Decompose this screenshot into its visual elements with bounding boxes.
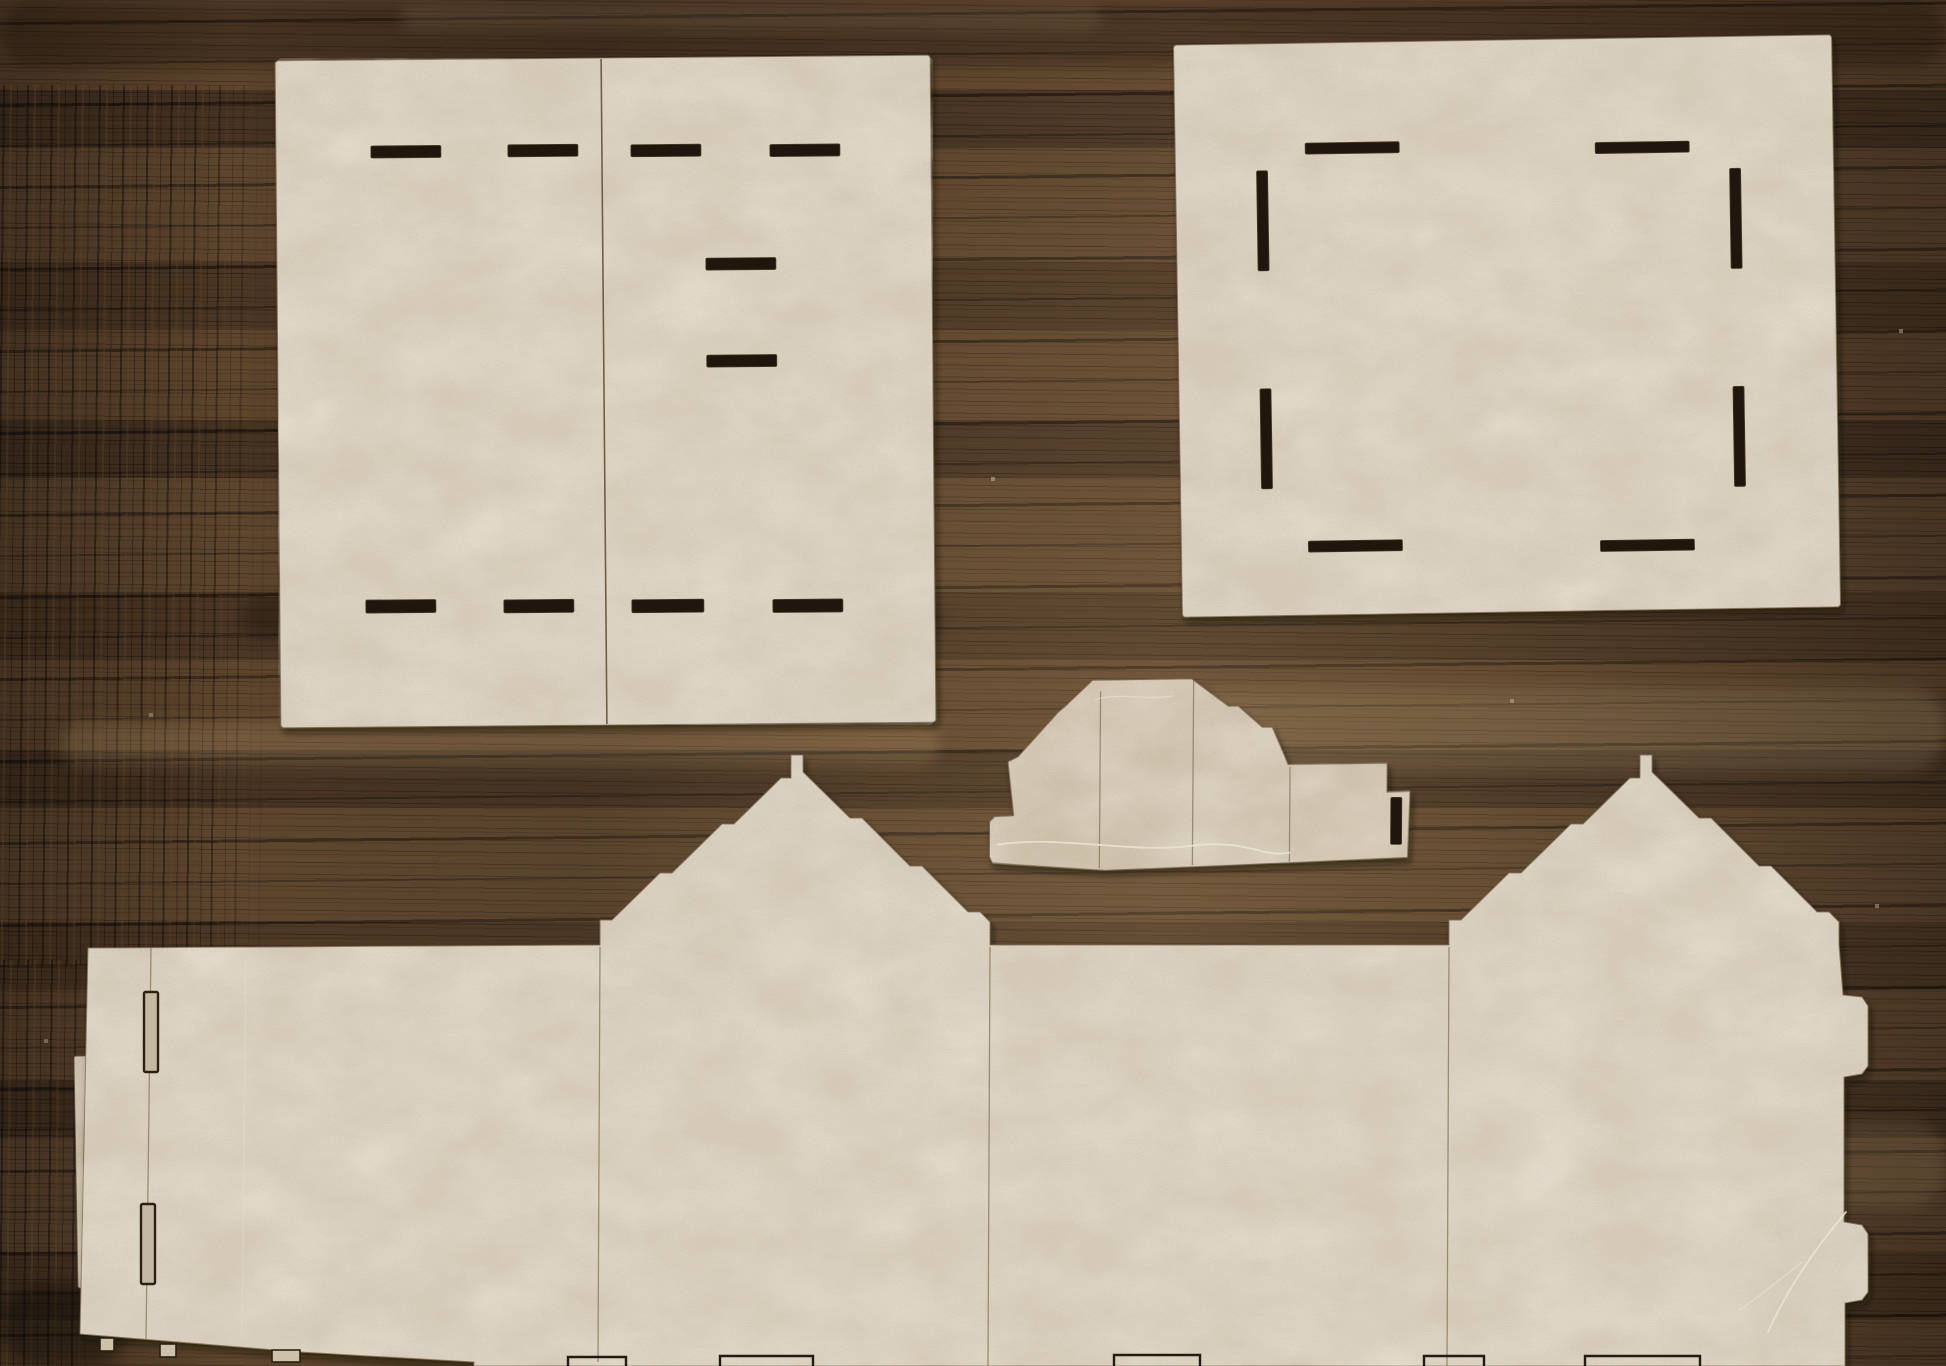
dormer-slot-group bbox=[1391, 797, 1402, 844]
paper-fiber-texture bbox=[0, 0, 1946, 1366]
slot-cut bbox=[504, 599, 574, 613]
fold-score-line bbox=[1289, 767, 1290, 862]
slot-cut bbox=[1733, 386, 1746, 486]
slot-cut bbox=[366, 599, 436, 613]
slot-cut bbox=[1730, 168, 1743, 268]
slot-cut bbox=[144, 992, 158, 1072]
bottom-tab-stub bbox=[160, 1344, 176, 1357]
slot-cut bbox=[631, 144, 701, 157]
slot-cut bbox=[1600, 539, 1694, 551]
slot-cut bbox=[770, 144, 840, 157]
bottom-tab-stub bbox=[100, 1338, 114, 1351]
slot-cut bbox=[632, 599, 704, 613]
slot-cut bbox=[1595, 141, 1689, 153]
slot-cut bbox=[1391, 797, 1402, 844]
slot-cut bbox=[1257, 171, 1270, 271]
slot-cut bbox=[1260, 389, 1273, 489]
photo-scene bbox=[0, 0, 1946, 1366]
slot-cut bbox=[1308, 540, 1402, 552]
slot-cut bbox=[707, 355, 777, 368]
slot-cut bbox=[371, 145, 441, 158]
cardboard-texture-overlay bbox=[0, 0, 1946, 1366]
slot-cut bbox=[773, 599, 843, 613]
slot-cut bbox=[508, 144, 578, 157]
slot-cut bbox=[141, 1204, 155, 1284]
bottom-tab-stub bbox=[272, 1350, 300, 1362]
slot-cut bbox=[1305, 142, 1399, 154]
cut-pieces-layer bbox=[0, 0, 1946, 1366]
slot-cut bbox=[706, 258, 776, 271]
